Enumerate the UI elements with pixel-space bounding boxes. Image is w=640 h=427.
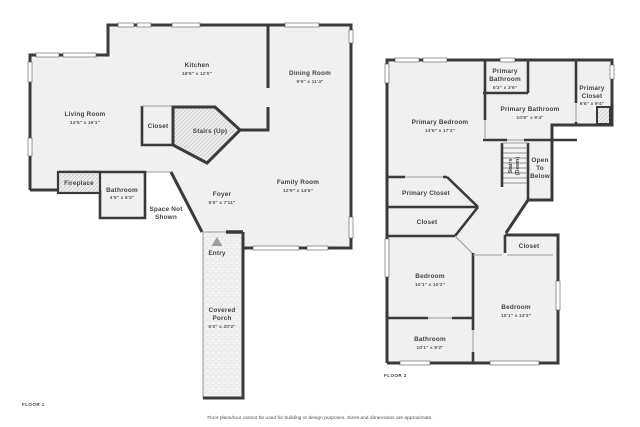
bedroom-left-label: Bedroom [415,273,445,280]
closet-label: Closet [148,123,169,130]
dining-room-label: Dining Room [289,70,331,77]
disclaimer-text: Floor plans/tour cannot be used for buil… [207,415,432,421]
floor2-plan: Primary Bedroom 13'6" x 17'3" Primary Ba… [384,58,614,378]
bathroom2-label: Bathroom [414,336,446,343]
primary-closet-upper-line2: Closet [582,93,603,100]
stairs-down-line2: (Down) [515,157,521,175]
stairs-down-line1: Stairs [508,159,514,174]
bedroom-left-dims: 10'1" x 10'2" [415,282,445,288]
kitchen-label: Kitchen [185,62,210,69]
family-room-label: Family Room [277,179,319,186]
primary-closet-upper-line1: Primary [579,85,604,92]
covered-porch-line2: Porch [212,315,231,322]
floor1-label: FLOOR 1 [22,402,45,407]
open-to-below-line1: Open [531,157,548,164]
primary-bedroom-dims: 13'6" x 17'3" [425,128,455,134]
bathroom-label: Bathroom [106,187,138,194]
entry-label: Entry [208,250,226,257]
floor-plan-svg: Living Room 13'5" x 16'1" Kitchen 18'9" … [0,0,640,427]
bathroom2-dims: 10'1" x 5'2" [416,345,443,351]
primary-bathroom-small-line2: Bathroom [489,76,521,83]
living-room-dims: 13'5" x 16'1" [70,120,100,126]
closet-left-label: Closet [417,219,438,226]
covered-porch-dims: 5'2" x 20'2" [208,324,235,330]
stairs-up-label: Stairs (Up) [193,128,228,135]
fireplace-label: Fireplace [64,180,94,187]
primary-bathroom-small-line1: Primary [492,68,517,75]
family-room-dims: 12'9" x 14'6" [283,188,313,194]
bedroom-right-label: Bedroom [501,304,531,311]
bedroom-right-dims: 10'1" x 13'3" [501,313,531,319]
space-not-shown-line2: Shown [155,214,177,221]
primary-bathroom-dims: 10'8" x 9'4" [516,115,543,121]
bathroom-dims: 4'9" x 5'2" [110,195,134,201]
kitchen-dims: 18'9" x 12'0" [182,71,212,77]
covered-porch-line1: Covered [209,307,236,314]
open-to-below-line2: To [536,165,544,172]
foyer-label: Foyer [213,191,232,198]
floor-plan-image: Living Room 13'5" x 16'1" Kitchen 18'9" … [0,0,640,427]
foyer-dims: 5'0" x 7'11" [209,200,236,206]
primary-bathroom-small-dims: 5'2" x 3'6" [493,85,517,91]
living-room-label: Living Room [65,111,106,118]
dining-room-dims: 9'9" x 11'4" [297,79,324,85]
floor2-label: FLOOR 2 [384,373,407,378]
floor1-plan: Living Room 13'5" x 16'1" Kitchen 18'9" … [22,23,353,407]
space-not-shown-line1: Space Not [149,206,183,213]
primary-bedroom-label: Primary Bedroom [412,119,469,126]
primary-closet-label: Primary Closet [402,190,451,197]
primary-closet-fixture [597,107,610,124]
open-to-below-line3: Below [530,173,550,180]
closet-right-label: Closet [519,243,540,250]
primary-bathroom-label: Primary Bathroom [501,106,560,113]
primary-closet-upper-dims: 6'6" x 9'4" [580,101,604,107]
